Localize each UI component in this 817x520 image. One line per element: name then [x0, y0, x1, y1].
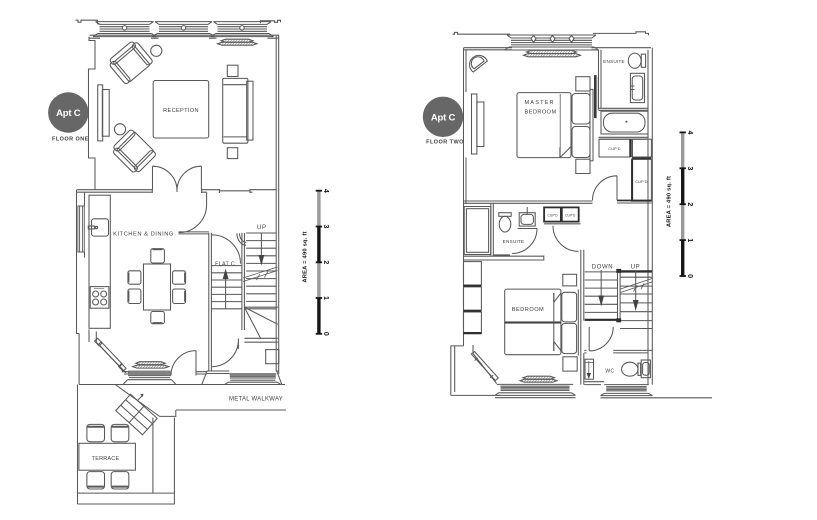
svg-text:1: 1 — [686, 238, 693, 242]
svg-text:FLOOR ONE: FLOOR ONE — [52, 137, 89, 143]
svg-text:CUP'D: CUP'D — [608, 147, 621, 151]
svg-text:4: 4 — [322, 189, 329, 193]
svg-text:Apt C: Apt C — [431, 112, 456, 123]
svg-text:UP: UP — [631, 264, 641, 270]
svg-text:DOWN: DOWN — [592, 264, 613, 270]
svg-text:1: 1 — [322, 296, 329, 300]
svg-text:CUP'D: CUP'D — [565, 213, 576, 217]
svg-text:0: 0 — [322, 332, 329, 336]
svg-text:UP: UP — [257, 225, 267, 231]
svg-text:ENSUITE: ENSUITE — [603, 59, 625, 64]
svg-text:FLAT C: FLAT C — [215, 262, 235, 268]
svg-text:4: 4 — [686, 131, 693, 135]
svg-text:BEDROOM: BEDROOM — [512, 307, 544, 313]
svg-text:AREA = 490 sq. ft: AREA = 490 sq. ft — [667, 176, 673, 227]
svg-text:FLOOR TWO: FLOOR TWO — [426, 139, 464, 145]
svg-text:3: 3 — [686, 166, 693, 170]
svg-text:RECEPTION: RECEPTION — [163, 108, 199, 114]
svg-text:BEDROOM: BEDROOM — [525, 109, 557, 115]
svg-text:METAL WALKWAY: METAL WALKWAY — [229, 396, 283, 402]
svg-text:CUP'D: CUP'D — [635, 180, 648, 184]
svg-text:0: 0 — [686, 274, 693, 278]
svg-text:MASTER: MASTER — [525, 100, 555, 106]
svg-text:CUP'D: CUP'D — [547, 213, 558, 217]
svg-text:TERRACE: TERRACE — [92, 456, 120, 462]
svg-text:3: 3 — [322, 225, 329, 229]
svg-text:AREA = 490 sq. ft: AREA = 490 sq. ft — [303, 231, 309, 282]
svg-text:2: 2 — [322, 260, 329, 264]
svg-text:ENSUITE: ENSUITE — [503, 239, 525, 244]
svg-text:Apt C: Apt C — [56, 108, 81, 119]
svg-text:2: 2 — [686, 202, 693, 206]
svg-text:KITCHEN & DINING: KITCHEN & DINING — [113, 232, 174, 238]
svg-text:WC: WC — [605, 368, 614, 374]
